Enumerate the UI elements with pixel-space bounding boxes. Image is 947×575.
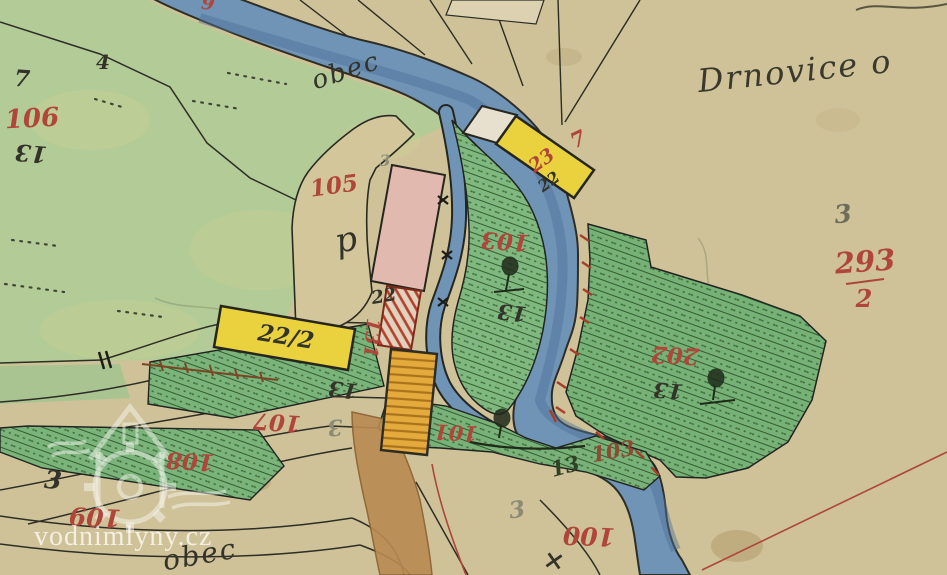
map-stage[interactable]: Drnovice oobecobecp106137410532213122/21… (0, 0, 947, 575)
building-orange-hatched (381, 349, 437, 455)
watermark-text: vodnimlyny.cz (34, 521, 212, 553)
cadastral-map-canvas (0, 0, 947, 575)
